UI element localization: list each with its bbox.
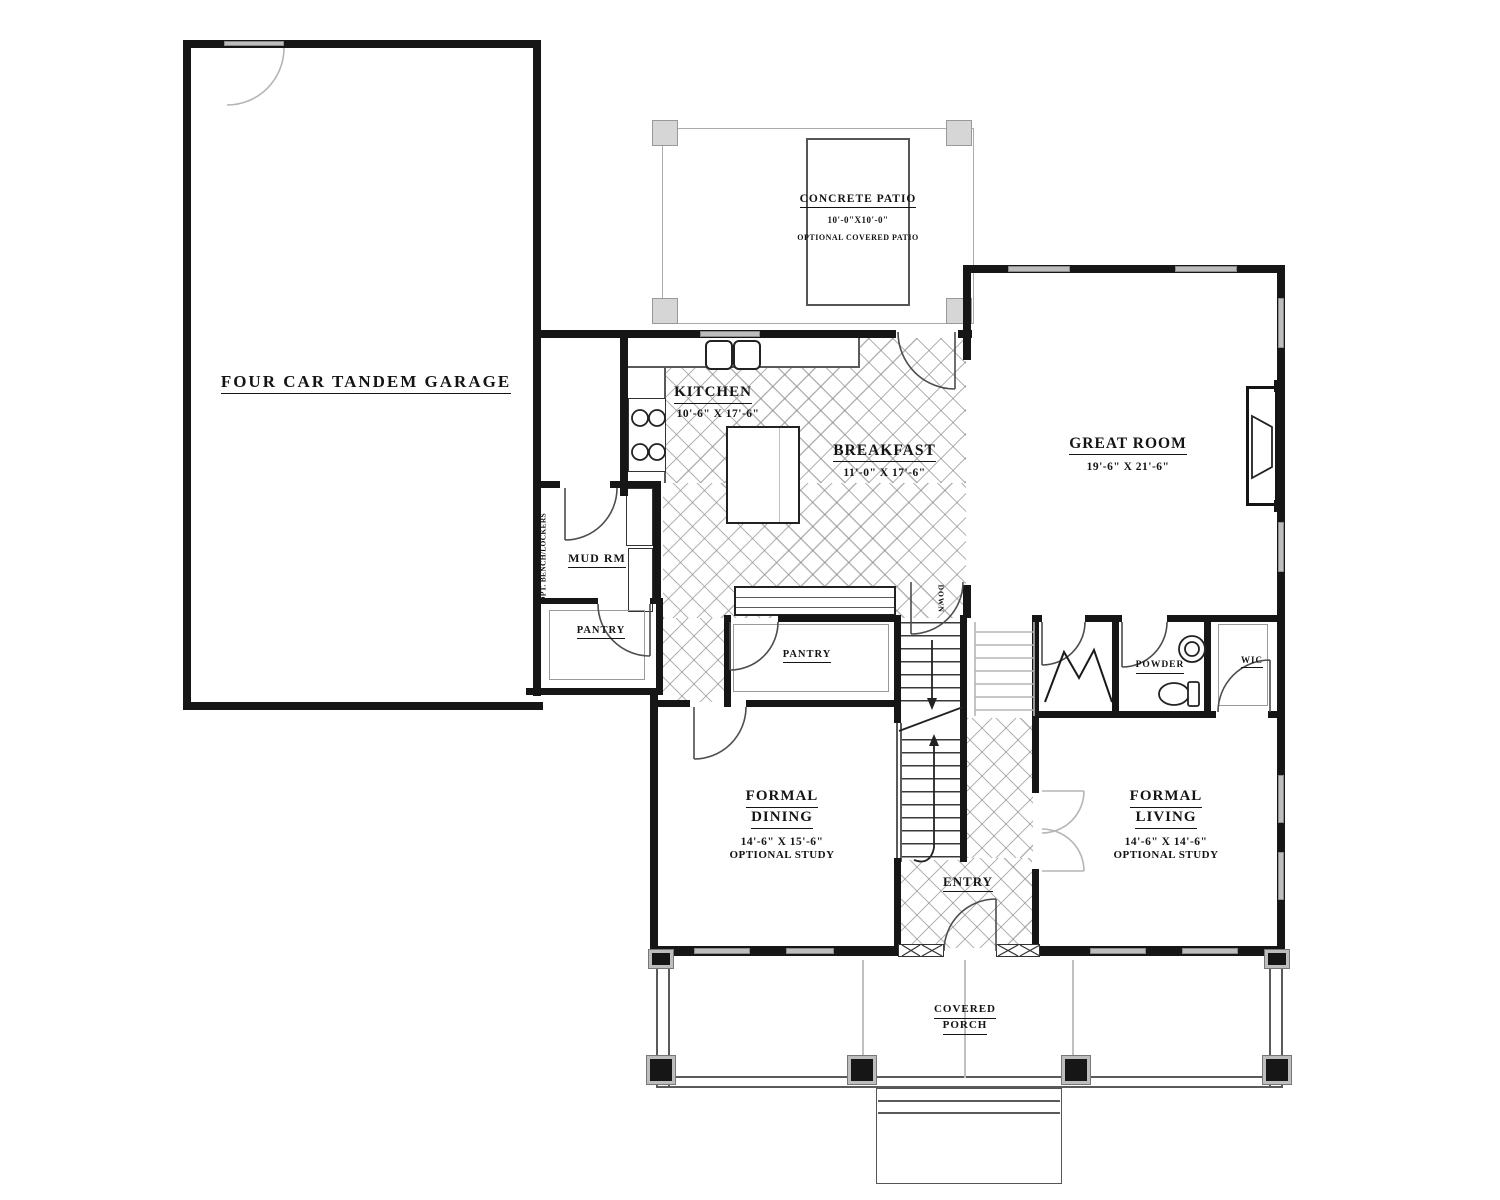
dining-window <box>694 948 750 954</box>
great-room-window <box>1278 522 1284 572</box>
formal-dining-label: FORMAL DINING 14'-6" X 15'-6" OPTIONAL S… <box>702 787 862 863</box>
powder-sink-icon <box>1185 642 1199 656</box>
front-steps <box>876 1088 1062 1184</box>
pantry-label: PANTRY <box>762 648 852 663</box>
toilet-icon <box>1159 683 1189 705</box>
porch-post <box>649 950 673 968</box>
kitchen-window <box>700 331 760 337</box>
toilet-icon <box>1188 682 1199 706</box>
garage-label: FOUR CAR TANDEM GARAGE <box>213 371 519 394</box>
study-double-door-arc <box>1042 791 1084 871</box>
wall <box>778 615 900 622</box>
closet-door-arc <box>1042 622 1085 665</box>
mud-room-bench-note: OPT. BENCH/LOCKERS <box>538 502 547 614</box>
porch-edge <box>662 1076 1282 1078</box>
floor-plan: FOUR CAR TANDEM GARAGE CONCRETE PATIO 10… <box>0 0 1500 1200</box>
wall <box>963 265 971 338</box>
living-window <box>1278 852 1284 900</box>
wall <box>746 700 900 707</box>
great-room-window <box>1278 298 1284 348</box>
patio-post <box>946 120 972 146</box>
wall <box>1268 711 1285 718</box>
living-window <box>1278 775 1284 823</box>
closet-rod-icon <box>1045 650 1112 702</box>
garage-service-door-opening <box>224 41 284 46</box>
wall <box>656 946 902 956</box>
wall <box>1032 711 1039 793</box>
island-edge <box>779 428 780 522</box>
breakfast-counter <box>734 586 896 616</box>
patio-dims: 10'-0"X10'-0" <box>792 215 924 226</box>
stair-railing <box>896 723 898 862</box>
pantry-shelving <box>549 610 645 680</box>
porch-column <box>848 1056 876 1084</box>
kitchen-island <box>726 426 800 524</box>
covered-porch-label: COVERED PORCH <box>905 1003 1025 1035</box>
step-tread <box>878 1100 1060 1102</box>
wall <box>894 858 901 956</box>
great-room-window <box>1175 266 1237 272</box>
fireplace <box>1274 380 1285 392</box>
dining-window <box>786 948 834 954</box>
porch-post <box>647 1056 675 1084</box>
formal-living-label: FORMAL LIVING 14'-6" X 14'-6" OPTIONAL S… <box>1086 787 1246 863</box>
porch-post <box>1263 1056 1291 1084</box>
wall <box>1032 711 1216 718</box>
entry-floor <box>901 858 1032 948</box>
wic-label: WIC <box>1224 655 1280 668</box>
wall <box>183 40 191 710</box>
patio-label: CONCRETE PATIO <box>792 192 924 208</box>
kitchen-dims: 10'-6" X 17'-6" <box>640 407 796 421</box>
wall <box>1204 615 1211 718</box>
living-window <box>1182 948 1238 954</box>
wall <box>183 702 543 710</box>
entry-label: ENTRY <box>928 874 1008 892</box>
wall <box>650 695 658 956</box>
hall-floor <box>967 718 1033 858</box>
stair-railing <box>900 723 902 862</box>
patio-door-opening <box>896 330 958 338</box>
powder-sink-icon <box>1179 636 1205 662</box>
breakfast-counter-line <box>736 607 894 608</box>
breakfast-dims: 11'-0" X 17'-6" <box>812 466 957 480</box>
staircase <box>901 622 960 860</box>
wall <box>656 700 690 707</box>
wall <box>533 330 628 338</box>
wall <box>963 330 971 360</box>
hall-floor <box>663 618 724 702</box>
wall <box>653 481 661 604</box>
great-room-label: GREAT ROOM <box>1040 434 1216 455</box>
porch-column <box>1062 1056 1090 1084</box>
wall <box>656 598 663 695</box>
front-sidelite <box>898 944 944 957</box>
step-tread <box>878 1112 1060 1114</box>
wall <box>1167 615 1285 622</box>
fireplace <box>1274 500 1285 512</box>
wall <box>1038 946 1285 956</box>
wall <box>894 615 901 723</box>
wall <box>526 688 663 695</box>
garage-door-arc <box>227 48 284 105</box>
front-sidelite <box>996 944 1040 957</box>
great-room-dims: 19'-6" X 21'-6" <box>1040 460 1216 474</box>
kitchen-label: KITCHEN <box>648 383 778 404</box>
living-window <box>1090 948 1146 954</box>
upper-stair-ghost-area <box>965 618 1035 718</box>
patio-post <box>652 120 678 146</box>
mudroom-bench-lockers <box>626 488 653 546</box>
counter-edge <box>628 366 858 368</box>
wall <box>1112 615 1119 718</box>
great-room-window <box>1008 266 1070 272</box>
breakfast-label: BREAKFAST <box>812 441 957 462</box>
wall <box>1032 615 1039 718</box>
powder-label: POWDER <box>1121 660 1199 674</box>
wall <box>533 481 560 488</box>
patio-note: OPTIONAL COVERED PATIO <box>788 233 928 243</box>
wall <box>724 615 731 707</box>
stair-direction-label: DOWN <box>936 579 945 619</box>
wall <box>1032 869 1039 956</box>
wall <box>620 330 628 496</box>
mud-door-arc <box>565 488 617 540</box>
counter-edge <box>858 338 860 368</box>
stair-break <box>897 706 963 732</box>
pantry-label: PANTRY <box>556 624 646 639</box>
patio-post <box>652 298 678 324</box>
breakfast-counter-line <box>736 597 894 598</box>
mud-room-label: MUD RM <box>551 551 643 568</box>
wall <box>960 615 967 862</box>
dining-door-arc <box>694 707 746 759</box>
fireplace <box>1246 386 1278 506</box>
porch-post <box>1265 950 1289 968</box>
wall <box>963 585 971 618</box>
